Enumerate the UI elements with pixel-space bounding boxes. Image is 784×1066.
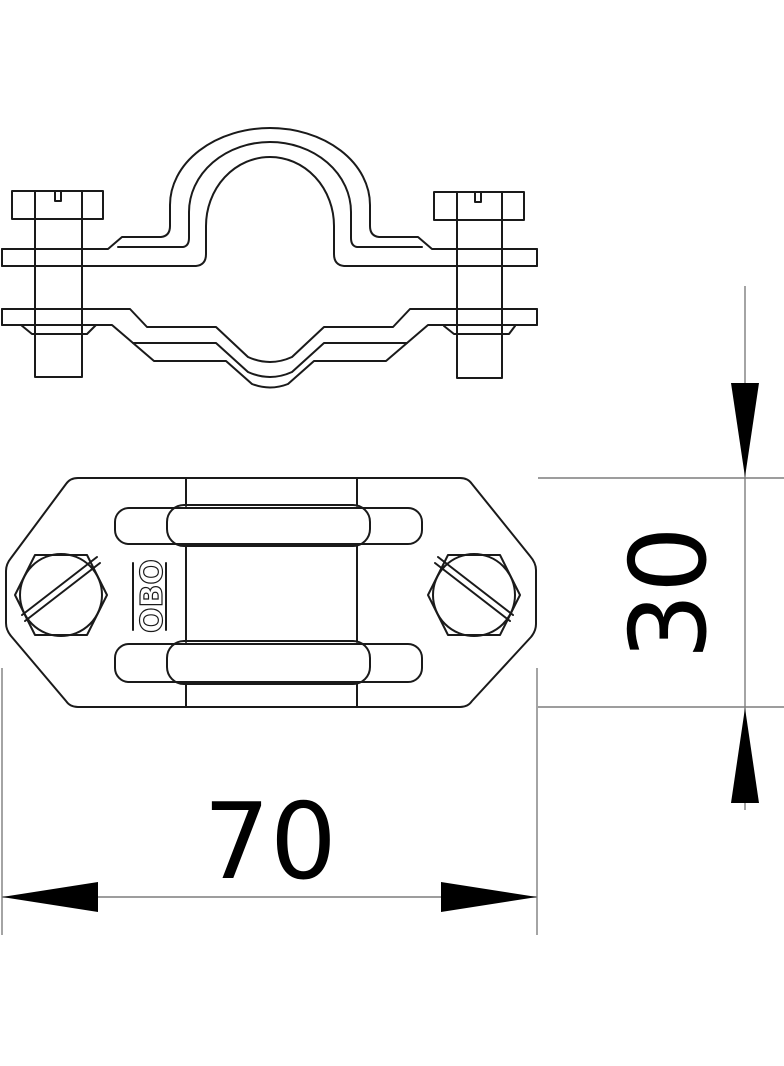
right-hex-screw-plan (428, 554, 520, 636)
width-dimension: 70 (2, 668, 537, 935)
bottom-slot-outer (115, 644, 422, 682)
left-hex-screw-plan (15, 554, 107, 636)
bottom-slot-inner (167, 641, 370, 684)
right-screw-nut (444, 326, 515, 334)
brand-text: OBO (135, 559, 170, 633)
right-screw-side (434, 192, 524, 378)
plan-view: OBO (6, 478, 536, 707)
right-screw-slot-lines (435, 557, 513, 621)
technical-drawing-page: OBO 70 30 (0, 0, 784, 1066)
base-plate-outline (6, 478, 536, 707)
right-screw-head (434, 192, 524, 220)
width-arrow-right (441, 882, 537, 912)
left-screw-head (12, 191, 103, 219)
top-slot-inner (167, 505, 370, 546)
width-dimension-label: 70 (203, 781, 337, 903)
width-arrow-left (2, 882, 98, 912)
left-screw-circle (20, 554, 102, 636)
left-screw-nut (21, 325, 96, 334)
top-slot-outer (115, 508, 422, 544)
left-screw-side (12, 191, 103, 377)
obo-logo: OBO (133, 559, 170, 633)
height-arrow-bottom (731, 708, 759, 803)
clamp-technical-drawing: OBO 70 30 (0, 0, 784, 1066)
height-arrow-top (731, 383, 759, 477)
right-screw-circle (433, 554, 515, 636)
side-elevation-view (2, 128, 537, 387)
strap-edge-lines (186, 478, 357, 707)
height-dimension: 30 (538, 286, 784, 810)
left-screw-slot-lines (22, 557, 100, 621)
height-dimension-label: 30 (608, 526, 730, 660)
left-screw-slot-notch (55, 191, 61, 201)
lower-strap-dip-line (133, 343, 407, 388)
right-screw-slot-notch (475, 192, 481, 202)
